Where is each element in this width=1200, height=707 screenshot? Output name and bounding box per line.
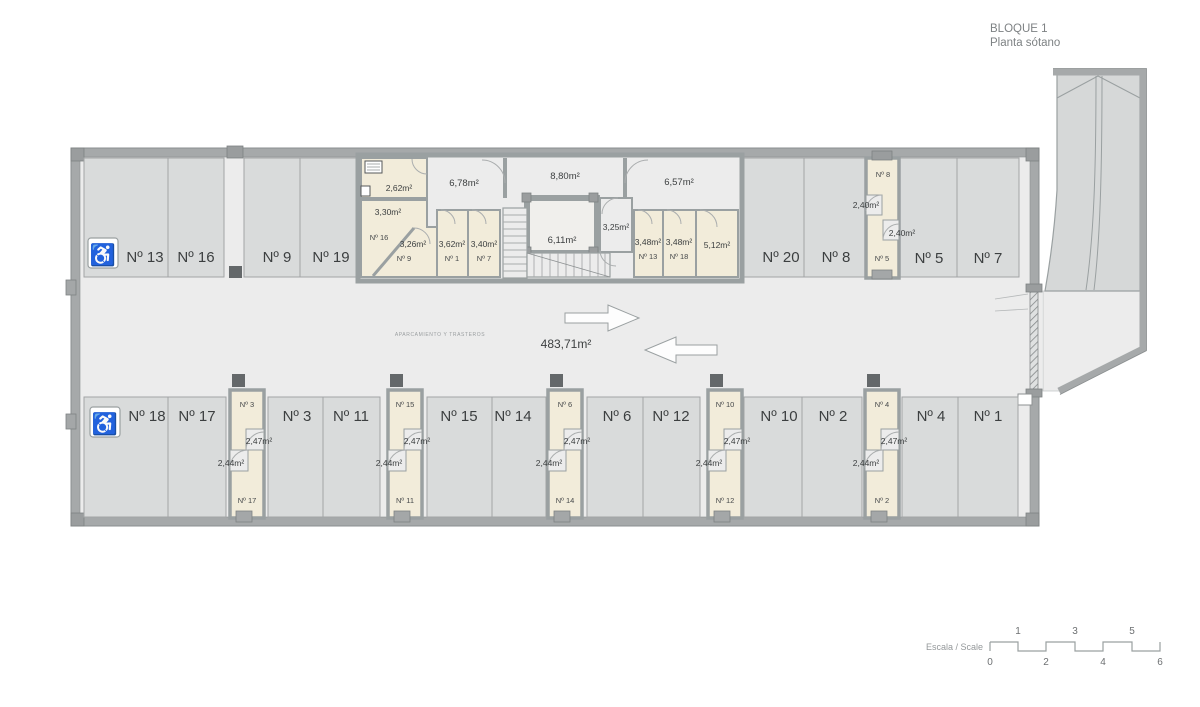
service-door <box>1018 394 1032 405</box>
elevator: 6,11m² <box>522 193 598 256</box>
cell-label: Nº 8 <box>876 170 890 179</box>
col-pilaster <box>236 511 252 522</box>
total-area: 483,71m² <box>541 337 592 351</box>
room-label: Nº 18 <box>670 252 689 261</box>
stall-label: Nº 13 <box>126 249 163 266</box>
accessible-badge: ♿ <box>88 238 118 268</box>
pillar <box>232 374 245 387</box>
cell-area: 2,44m² <box>536 458 563 468</box>
cell-label: Nº 12 <box>716 496 735 505</box>
scale-tick: 3 <box>1072 626 1078 637</box>
cell-label: Nº 5 <box>875 254 889 263</box>
scale-bar: Escala / Scale 1 3 5 0 2 4 6 <box>926 626 1163 668</box>
stall-label: Nº 15 <box>440 408 477 425</box>
floor-plan-page: ♿ Nº 13 Nº 16 Nº 9 Nº 19 Nº 20 Nº 8 Nº 5… <box>0 0 1200 707</box>
left-wall-pilaster-2 <box>66 414 76 429</box>
cell-area: 2,47m² <box>881 436 908 446</box>
lobby-area: 8,80m² <box>550 171 580 182</box>
stall-label: Nº 1 <box>974 408 1003 425</box>
corridor-area: 6,57m² <box>664 177 694 188</box>
cell-label: Nº 15 <box>396 400 415 409</box>
cell-label: Nº 6 <box>558 400 572 409</box>
page-subtitle: Planta sótano <box>990 37 1060 49</box>
cell-area: 2,44m² <box>218 458 245 468</box>
cell-area: 2,40m² <box>889 228 916 238</box>
room-area: 2,62m² <box>386 183 413 193</box>
cell-area: 2,44m² <box>696 458 723 468</box>
room-area: 3,26m² <box>400 239 427 249</box>
room-area: 5,12m² <box>704 240 731 250</box>
scale-tick: 5 <box>1129 626 1135 637</box>
entry-ramp <box>1043 69 1147 395</box>
scale-tick: 4 <box>1100 657 1106 668</box>
stall-label: Nº 12 <box>652 408 689 425</box>
room-area: 3,48m² <box>666 237 693 247</box>
stall-label: Nº 5 <box>915 250 944 267</box>
cell-area: 2,40m² <box>853 200 880 210</box>
wheelchair-icon: ♿ <box>92 411 118 436</box>
stall-label: Nº 16 <box>177 249 214 266</box>
zone-label: APARCAMIENTO Y TRASTEROS <box>395 332 485 338</box>
wheelchair-icon: ♿ <box>90 242 116 267</box>
stall-label: Nº 10 <box>760 408 797 425</box>
room-area: 3,48m² <box>635 237 662 247</box>
floor-plan-svg: ♿ Nº 13 Nº 16 Nº 9 Nº 19 Nº 20 Nº 8 Nº 5… <box>0 0 1200 707</box>
scale-tick: 2 <box>1043 657 1049 668</box>
stall-label: Nº 18 <box>128 408 165 425</box>
col-pilaster <box>871 511 887 522</box>
col-pilaster <box>872 151 892 160</box>
cell-area: 2,47m² <box>246 436 273 446</box>
room-label: Nº 16 <box>370 233 389 242</box>
corner-post-ne <box>1026 148 1039 161</box>
cell-label: Nº 14 <box>556 496 575 505</box>
room-area: 3,30m² <box>375 207 402 217</box>
cell-label: Nº 11 <box>396 496 414 505</box>
scale-bar-graphic <box>990 642 1160 651</box>
corner-post-nw <box>71 148 84 161</box>
gate-post-top <box>1026 284 1042 292</box>
pillar <box>710 374 723 387</box>
stall-label: Nº 2 <box>819 408 848 425</box>
pillar <box>550 374 563 387</box>
pillar <box>229 266 242 278</box>
vestibule-area: 3,25m² <box>603 222 630 232</box>
room-label: Nº 13 <box>639 252 658 261</box>
col-pilaster <box>714 511 730 522</box>
top-wall-pilaster <box>227 146 243 158</box>
cell-label: Nº 2 <box>875 496 889 505</box>
cell-area: 2,47m² <box>564 436 591 446</box>
stall-label: Nº 9 <box>263 249 292 266</box>
stall-label: Nº 3 <box>283 408 312 425</box>
room-label: Nº 9 <box>397 254 411 263</box>
cell-label: Nº 17 <box>238 496 257 505</box>
cell-area: 2,44m² <box>376 458 403 468</box>
left-wall-pilaster-1 <box>66 280 76 295</box>
cell-area: 2,47m² <box>404 436 431 446</box>
stall-label: Nº 8 <box>822 249 851 266</box>
col-pilaster <box>554 511 570 522</box>
cell-label: Nº 3 <box>240 400 254 409</box>
stall-label: Nº 7 <box>974 250 1003 267</box>
corner-post-sw <box>71 513 84 526</box>
elevator-area: 6,11m² <box>548 235 577 246</box>
corridor-area: 6,78m² <box>449 178 479 189</box>
cell-area: 2,47m² <box>724 436 751 446</box>
scale-label: Escala / Scale <box>926 642 983 652</box>
room-label: Nº 7 <box>477 254 491 263</box>
col-pilaster <box>872 270 892 279</box>
stall-label: Nº 14 <box>494 408 531 425</box>
stall-label: Nº 11 <box>333 408 369 425</box>
stall-label: Nº 20 <box>762 249 799 266</box>
room-area: 3,40m² <box>471 239 498 249</box>
pillar <box>867 374 880 387</box>
col-pilaster <box>394 511 410 522</box>
drawing-title: BLOQUE 1 Planta sótano <box>990 23 1060 49</box>
scale-tick: 6 <box>1157 657 1163 668</box>
cell-label: Nº 10 <box>716 400 735 409</box>
scale-tick: 0 <box>987 657 993 668</box>
pillar <box>390 374 403 387</box>
stall-label: Nº 19 <box>312 249 349 266</box>
room-area: 3,62m² <box>439 239 466 249</box>
storage-block-top: 2,62m² 3,30m² Nº 16 3,26m² Nº 9 3,62m² N… <box>358 155 742 281</box>
stall-label: Nº 17 <box>178 408 215 425</box>
corner-post-se <box>1026 513 1039 526</box>
stall-label: Nº 4 <box>917 408 946 425</box>
entrance-gate-grille <box>1030 292 1038 389</box>
cell-label: Nº 4 <box>875 400 889 409</box>
page-title: BLOQUE 1 <box>990 23 1048 35</box>
room-label: Nº 1 <box>445 254 459 263</box>
cell-area: 2,44m² <box>853 458 880 468</box>
stall-label: Nº 6 <box>603 408 632 425</box>
ramp-body <box>1045 74 1140 291</box>
scale-tick: 1 <box>1015 626 1021 637</box>
accessible-badge: ♿ <box>90 407 120 437</box>
